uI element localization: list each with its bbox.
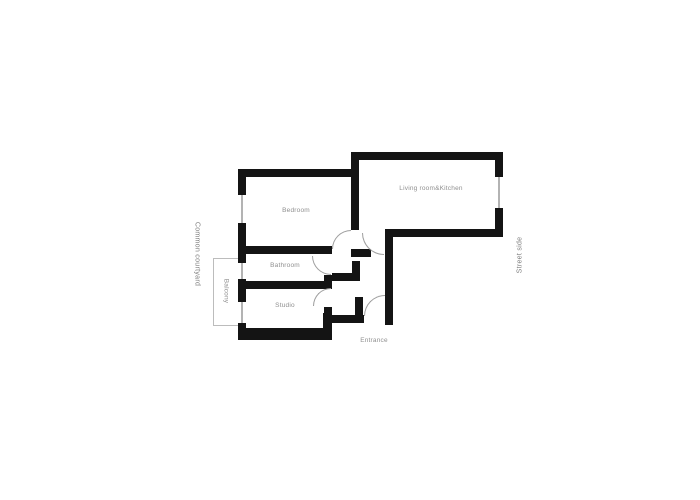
wall-bedroom-bathroom-divider [238,246,332,254]
wall-corridor-arm [351,249,371,257]
wall-studio-bottom [238,328,332,340]
wall-living-top [351,152,503,160]
bedroom-window [241,195,243,223]
wall-studio-left-upper [238,289,246,302]
common-courtyard-label: Common courtyard [194,222,201,286]
bathroom-balcony-window [241,263,243,279]
wall-bedroom-top [238,169,359,177]
wall-vestibule-bottom [332,315,364,323]
bathroom-label: Bathroom [270,263,300,270]
wall-niche-bottom [332,273,360,281]
floor-plan: Bedroom Living room&Kitchen Bathroom Stu… [0,0,700,500]
wall-bedroom-left-upper [238,177,246,195]
street-side-label: Street side [517,237,524,274]
wall-bedroom-right [351,160,359,230]
wall-niche-stub [352,261,360,273]
wall-living-right-lower [495,208,503,229]
wall-entrance-step [323,313,332,340]
entrance-door-arc [364,295,385,316]
bedroom-door-arc [332,230,351,249]
bedroom-label: Bedroom [282,208,310,215]
entrance-label: Entrance [360,338,388,345]
wall-living-bottom [385,229,503,237]
studio-door-arc [313,288,331,306]
wall-living-right-upper [495,160,503,177]
wall-entrance-stub [355,297,363,315]
wall-corridor-right [385,237,393,325]
balcony-label: Balcony [222,279,229,304]
studio-label: Studio [275,303,295,310]
studio-balcony-window [241,302,243,323]
living-room-kitchen-label: Living room&Kitchen [399,186,462,193]
wall-bathroom-left-upper [238,254,246,263]
wall-bathroom-studio-divider [238,281,332,289]
living-room-window [498,177,500,208]
wall-bedroom-left-lower [238,223,246,246]
wall-bathroom-right-lower [324,275,332,281]
bathroom-door-arc [312,256,331,275]
